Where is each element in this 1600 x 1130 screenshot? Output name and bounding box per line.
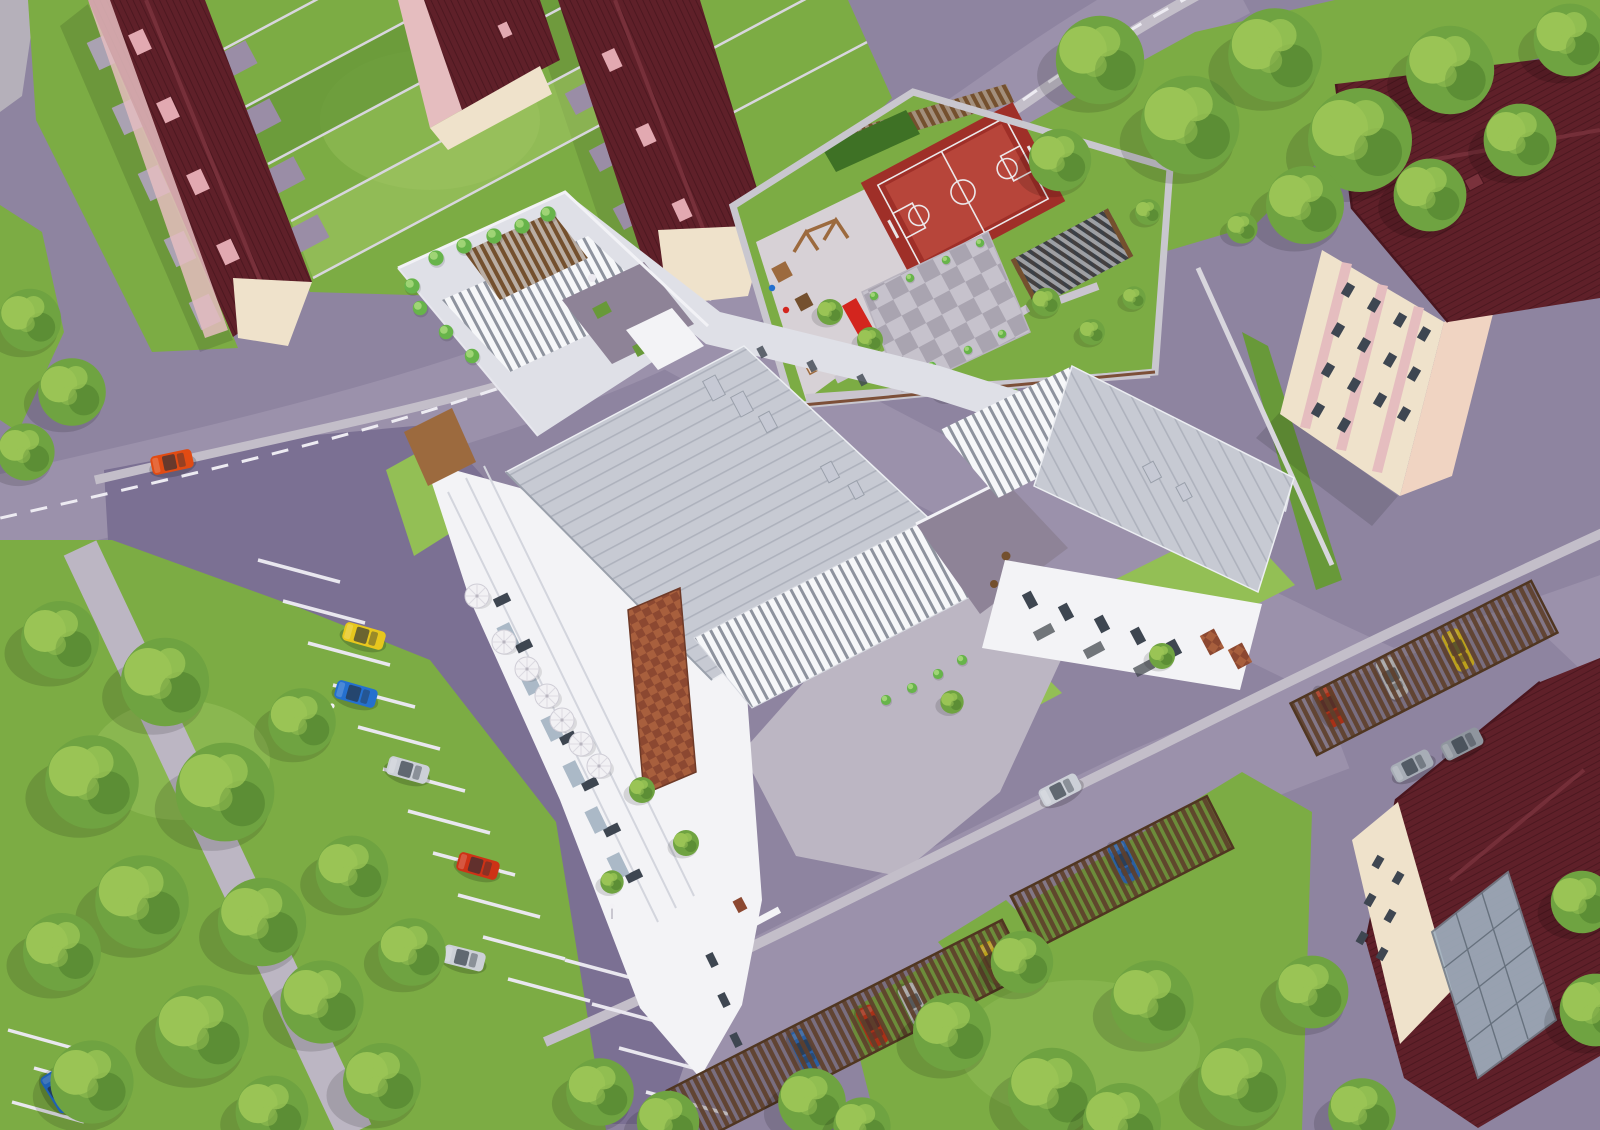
terrace-furniture <box>1002 552 1011 561</box>
terrace-furniture <box>990 580 998 588</box>
aerial-render <box>0 0 1600 1130</box>
terrace-table <box>588 274 596 282</box>
spring-toy <box>783 307 789 313</box>
spring-toy <box>769 285 775 291</box>
scene-canvas <box>0 0 1600 1130</box>
